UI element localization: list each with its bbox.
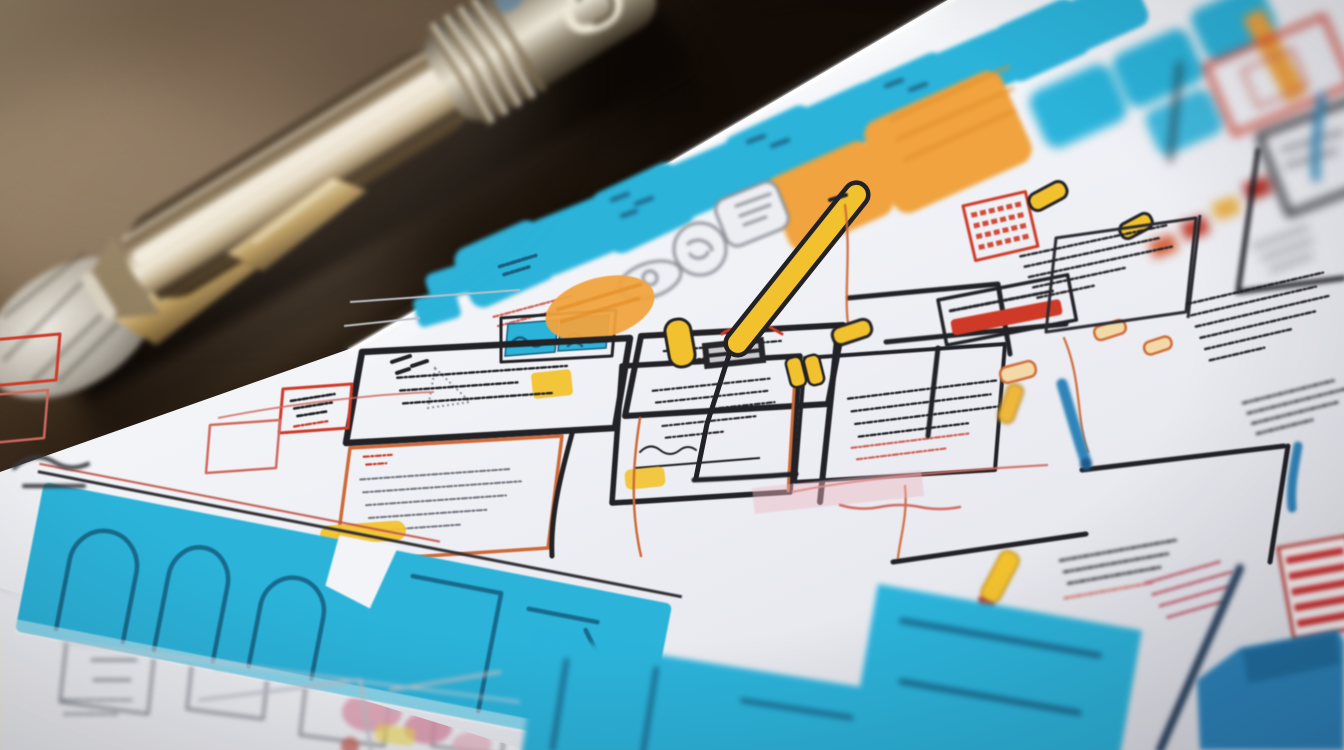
scene-svg <box>0 0 1344 750</box>
photo-blueprint-wireframes <box>0 0 1344 750</box>
